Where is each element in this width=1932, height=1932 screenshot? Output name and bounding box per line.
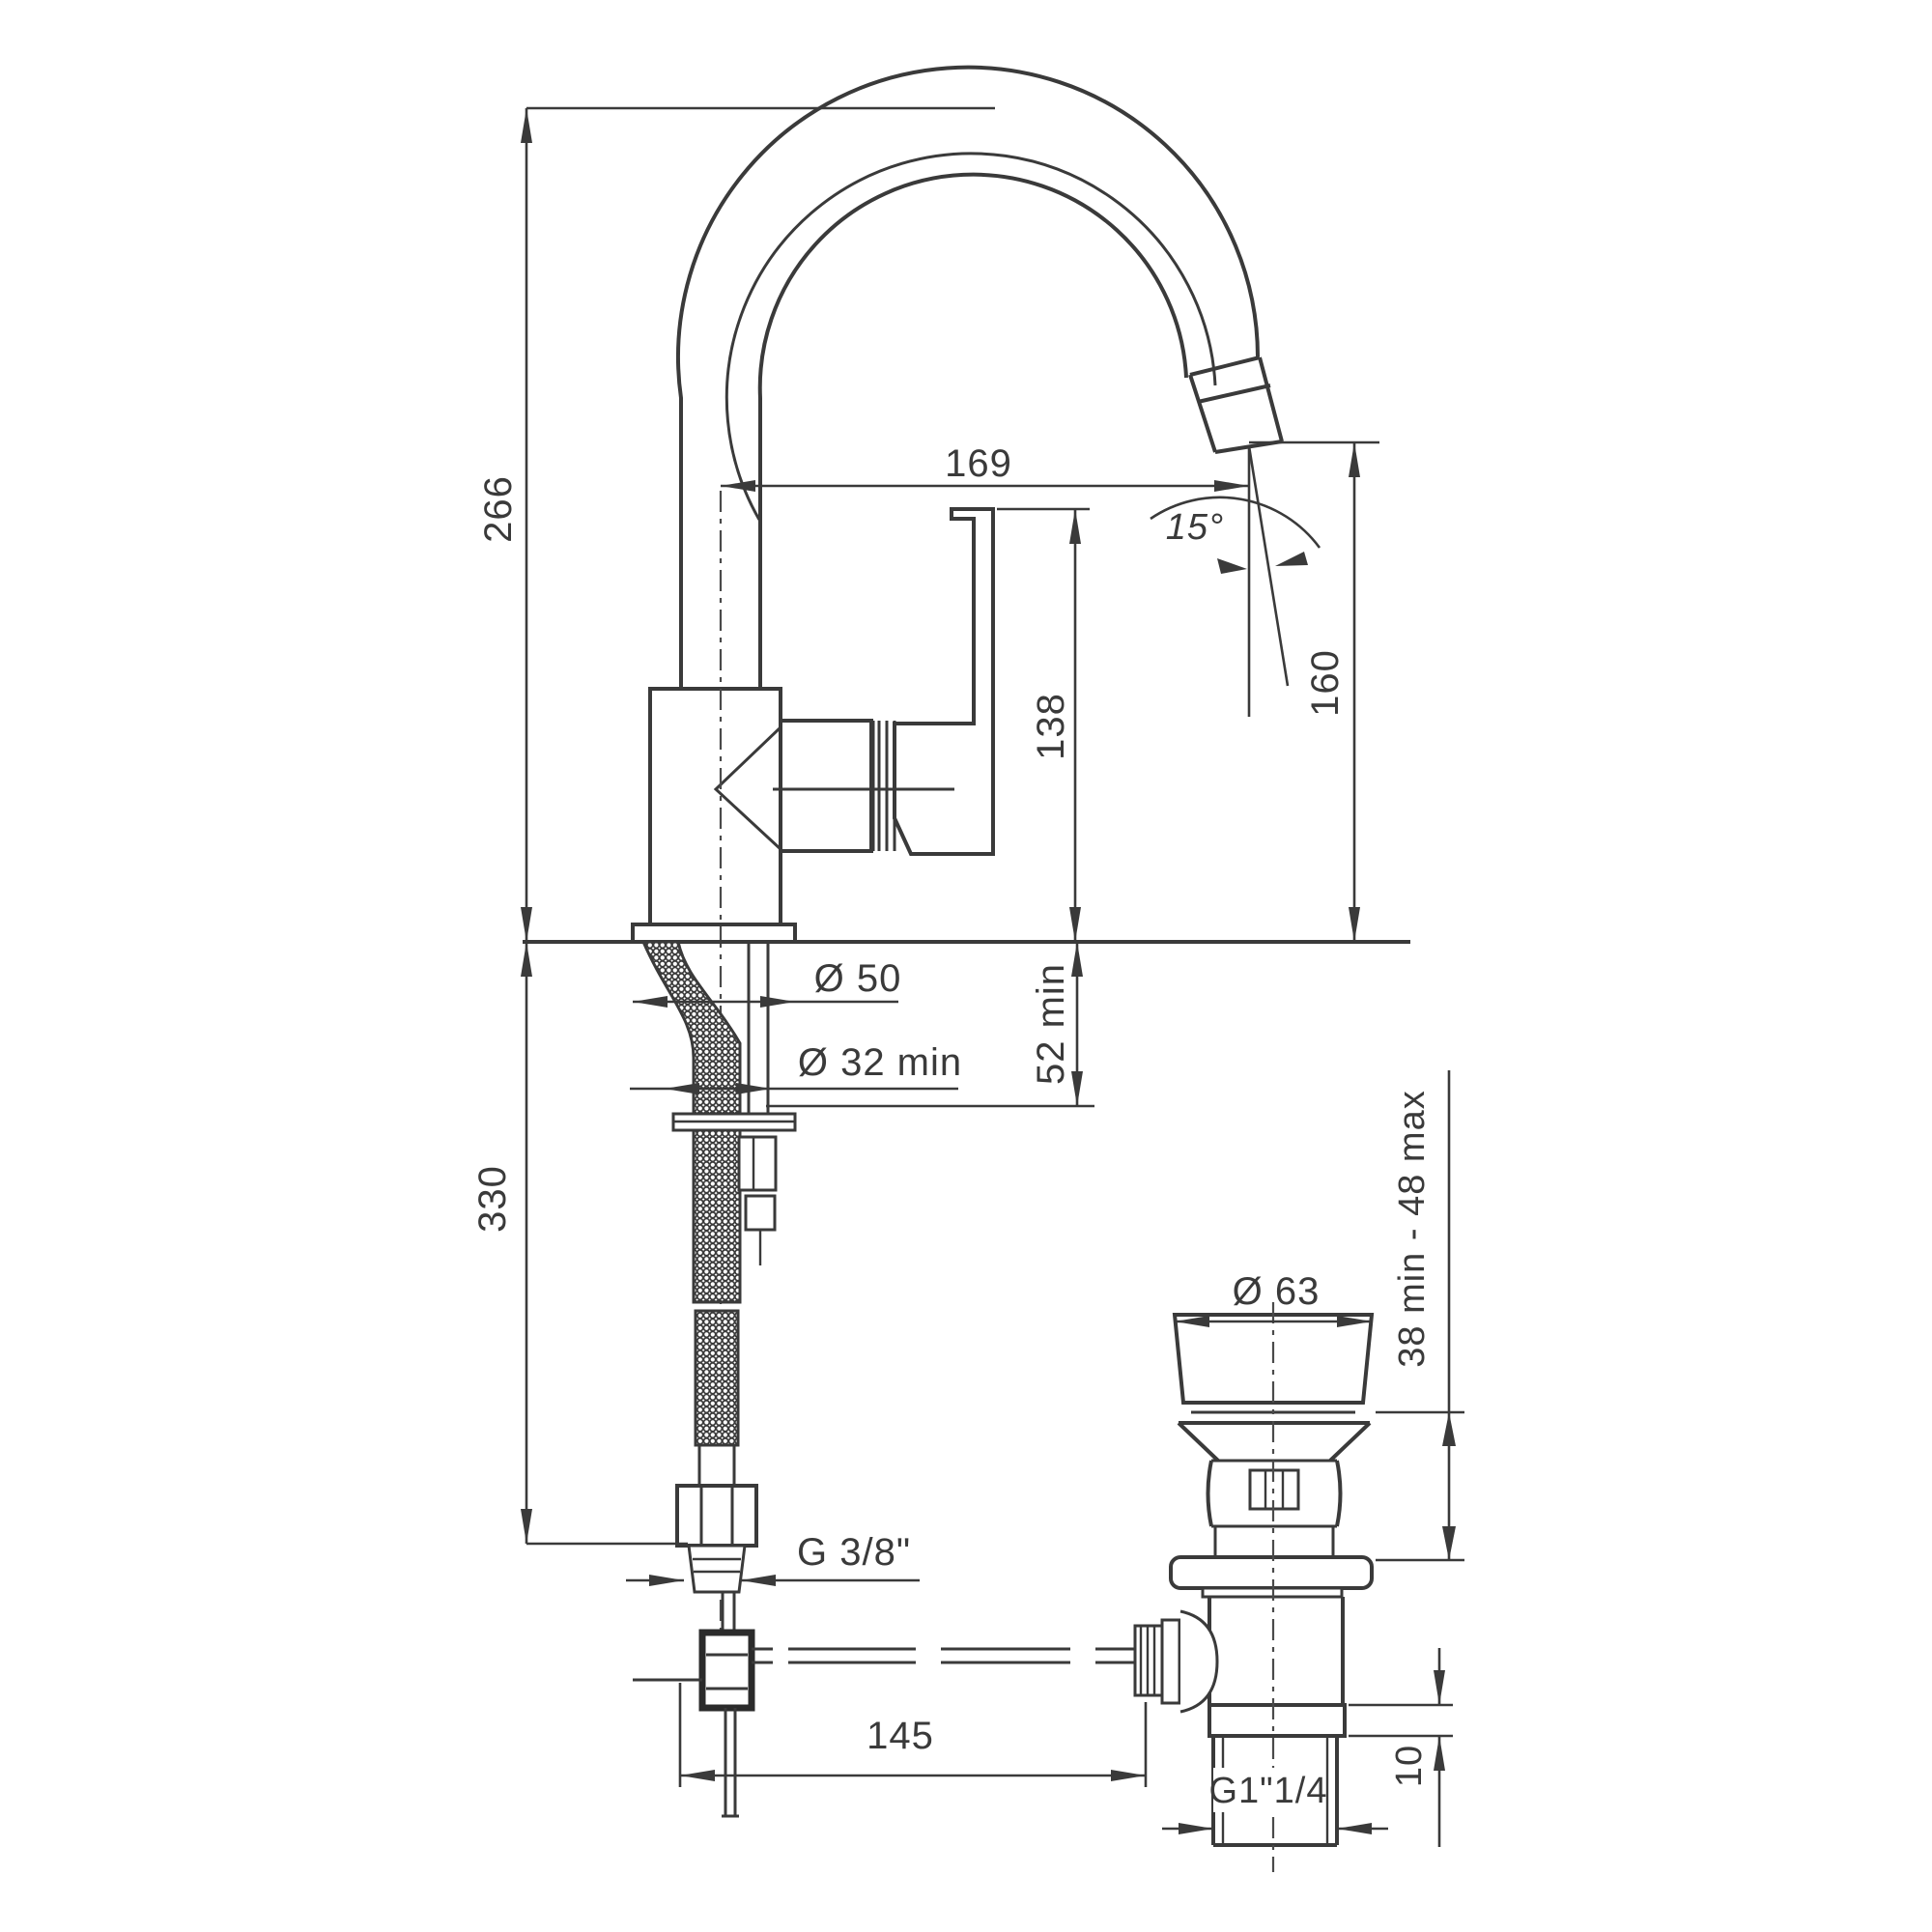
handle-lever <box>895 509 993 854</box>
dim-label-overall-height: 266 <box>477 475 520 543</box>
handle-rings <box>873 721 895 851</box>
popup-rod-assembly <box>633 1592 1135 1816</box>
dim-label-handle-height: 138 <box>1030 693 1072 760</box>
basin-flange <box>1171 1557 1372 1588</box>
dim-label-rod-offset: 145 <box>867 1715 934 1757</box>
base-flange <box>633 924 795 942</box>
dim-label-supply-thread: G 3/8" <box>797 1531 911 1574</box>
dim-label-outlet-height: 160 <box>1304 649 1347 717</box>
dim-label-locknut-height: 10 <box>1389 1745 1430 1787</box>
handle-hub <box>781 721 871 851</box>
dim-label-hose-drop: 330 <box>471 1165 514 1233</box>
faucet-technical-drawing: 266 330 169 15° 160 138 Ø 50 Ø 32 min 52… <box>0 0 1932 1932</box>
spout-nozzle <box>1190 357 1282 452</box>
dim-label-waste-thread: G1"1/4 <box>1208 1771 1327 1811</box>
dim-label-base-diameter: Ø 50 <box>814 957 902 1000</box>
spout-outer-arc <box>678 68 1258 689</box>
supply-hose-lower <box>696 1311 738 1445</box>
dim-label-waste-flange: Ø 63 <box>1233 1270 1321 1313</box>
dimension-labels-group: 266 330 169 15° 160 138 Ø 50 Ø 32 min 52… <box>471 442 1433 1812</box>
dim-label-deck-thickness: 52 min <box>1030 963 1072 1085</box>
mixer-body <box>650 689 781 924</box>
hose-nut-g38 <box>677 1445 756 1592</box>
drain-locknut <box>1209 1705 1345 1736</box>
rod-knurled-nut <box>1135 1611 1217 1712</box>
dim-label-mounting-hole: Ø 32 min <box>798 1041 962 1084</box>
dim-label-spout-angle: 15° <box>1166 507 1224 548</box>
cartridge-chevron <box>716 727 781 849</box>
dim-label-spout-reach: 169 <box>945 442 1012 485</box>
dim-label-basin-thickness: 38 min - 48 max <box>1392 1090 1433 1367</box>
